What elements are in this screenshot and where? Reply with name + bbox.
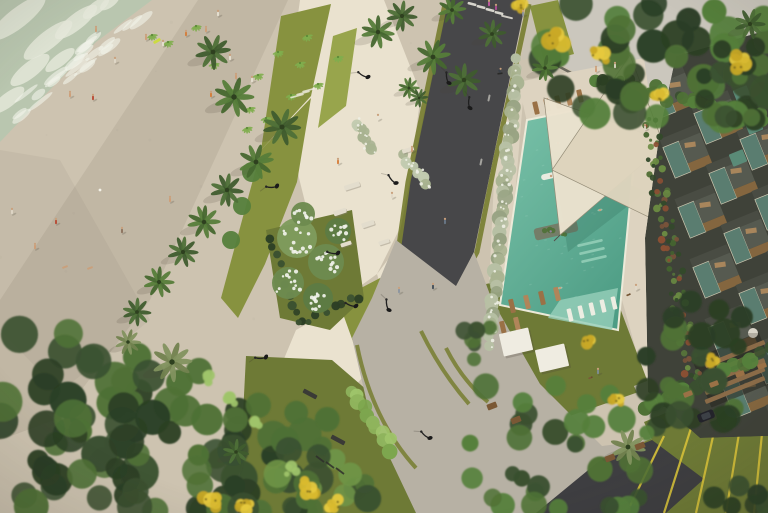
resort-render-canvas xyxy=(0,0,768,513)
vignette-overlay xyxy=(0,0,768,513)
aerial-architectural-render xyxy=(0,0,768,513)
